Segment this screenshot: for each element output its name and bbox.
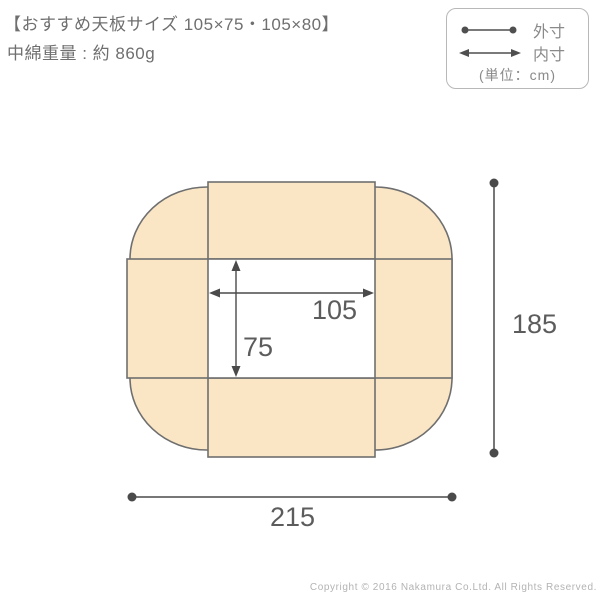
outer-height-value: 185 [512, 311, 557, 338]
product-dimension-page: 【おすすめ天板サイズ 105×75・105×80】 中綿重量 : 約 860g … [0, 0, 600, 600]
outer-width-line [128, 493, 457, 502]
outer-width-value: 215 [270, 504, 315, 531]
inner-height-value: 75 [243, 334, 273, 361]
copyright-text: Copyright © 2016 Nakamura Co.Ltd. All Ri… [310, 582, 597, 593]
inner-width-value: 105 [312, 297, 357, 324]
outer-height-line [490, 179, 499, 458]
